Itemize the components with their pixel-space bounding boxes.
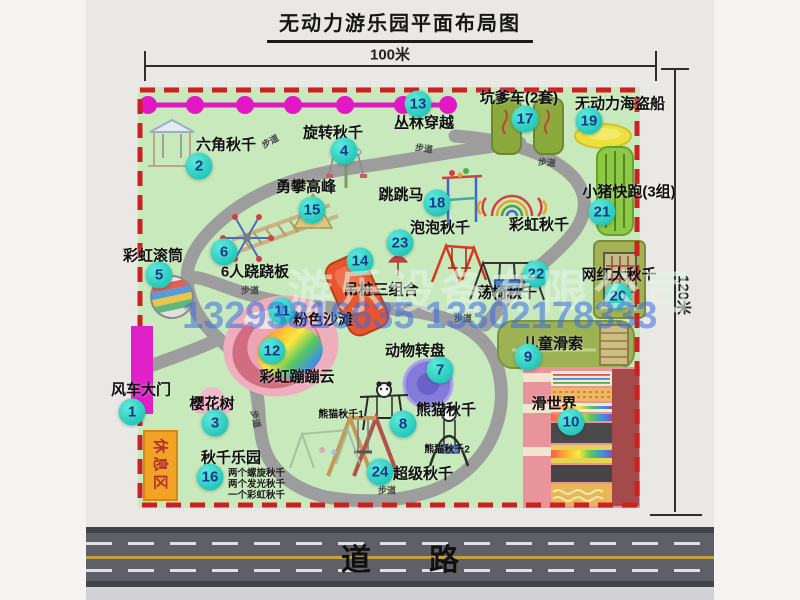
footpath-label-3: 步道 — [537, 155, 556, 170]
attraction-marker-12: 12 — [259, 338, 286, 365]
extra-label-3: 熊猫秋千2 — [424, 441, 470, 456]
attraction-marker-16: 16 — [197, 464, 224, 491]
attraction-label-8: 熊猫秋千 — [416, 399, 476, 420]
road-shoulder — [86, 587, 714, 600]
attraction-label-15: 勇攀高峰 — [276, 176, 336, 197]
attraction-marker-9: 9 — [515, 344, 542, 371]
attraction-marker-10: 10 — [558, 409, 585, 436]
attraction-marker-24: 24 — [367, 459, 394, 486]
dimension-width-label: 100米 — [370, 44, 410, 65]
footpath-label-1: 步道 — [259, 131, 281, 151]
footpath-label-4: 步道 — [241, 284, 259, 297]
footpath-label-6: 步道 — [248, 409, 264, 429]
attraction-label-17: 坑爹车(2套) — [480, 87, 558, 108]
dimension-height-label: 120米 — [674, 275, 695, 315]
attraction-label-14: 吊桩三组合 — [343, 279, 418, 300]
attraction-marker-20: 20 — [605, 283, 632, 310]
attraction-marker-13: 13 — [405, 91, 432, 118]
attraction-marker-4: 4 — [331, 138, 358, 165]
attraction-label-2: 六角秋千 — [196, 134, 256, 155]
footpath-label-5: 步道 — [454, 312, 472, 325]
attraction-marker-1: 1 — [119, 399, 146, 426]
attraction-marker-8: 8 — [390, 411, 417, 438]
attraction-label-11: 粉色沙滩 — [293, 309, 353, 330]
attraction-label-18: 跳跳马 — [378, 184, 423, 205]
road-label: 道路 — [341, 535, 517, 579]
attraction-label-1: 风车大门 — [111, 379, 171, 400]
swing-park-detail-list: 两个螺旋秋千两个发光秋千一个彩虹秋千 — [228, 468, 285, 501]
attraction-marker-17: 17 — [512, 106, 539, 133]
attraction-marker-18: 18 — [424, 190, 451, 217]
attraction-marker-21: 21 — [589, 199, 616, 226]
attraction-marker-15: 15 — [299, 197, 326, 224]
attraction-marker-22: 22 — [523, 261, 550, 288]
footpath-label-7: 步道 — [378, 484, 396, 497]
page-title: 无动力游乐园平面布局图 — [267, 7, 533, 43]
attraction-marker-7: 7 — [427, 357, 454, 384]
attraction-marker-6: 6 — [211, 239, 238, 266]
attraction-marker-14: 14 — [347, 248, 374, 275]
footpath-label-2: 步道 — [414, 140, 434, 155]
attraction-label-24: 超级秋千 — [393, 463, 453, 484]
park-plan-image: 无动力游乐园平面布局图 — [0, 0, 800, 600]
attraction-marker-2: 2 — [186, 153, 213, 180]
attraction-label-12: 彩虹蹦蹦云 — [259, 366, 334, 387]
attraction-marker-5: 5 — [146, 262, 173, 289]
extra-label-1: 彩虹秋千 — [509, 214, 569, 235]
extra-label-2: 熊猫秋千1 — [318, 406, 364, 421]
attraction-marker-19: 19 — [576, 108, 603, 135]
attraction-marker-11: 11 — [269, 298, 296, 325]
road-label-wrap: 道路 — [86, 533, 714, 581]
attraction-label-4: 旋转秋千 — [303, 122, 363, 143]
attraction-label-23: 泡泡秋千 — [410, 217, 470, 238]
attraction-marker-3: 3 — [202, 410, 229, 437]
attraction-label-6: 6人跷跷板 — [221, 261, 289, 282]
road: 道路 — [86, 527, 714, 587]
attraction-marker-23: 23 — [387, 230, 414, 257]
attraction-label-20: 网红大秋千 — [581, 264, 656, 285]
